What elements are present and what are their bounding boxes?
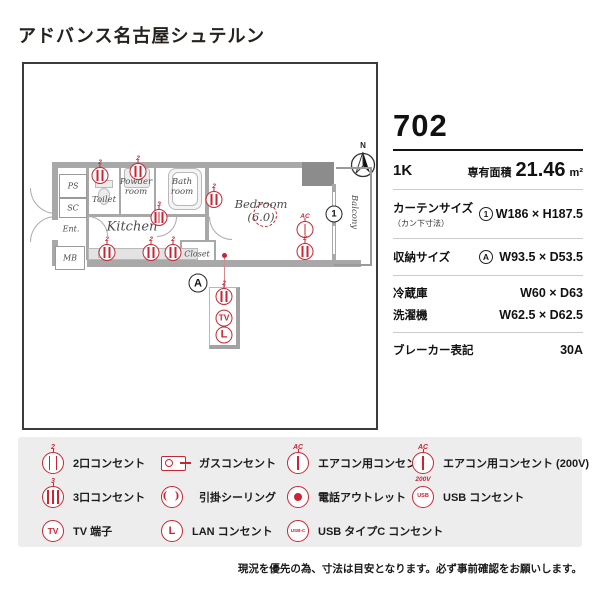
usb-outlet-icon: USB xyxy=(412,486,434,508)
wall-segment xyxy=(86,214,208,217)
divider xyxy=(393,189,583,190)
legend-item: ( ) 引掛シーリング xyxy=(161,486,276,508)
compass-needle xyxy=(349,150,377,178)
outlet-2-icon: 2 xyxy=(143,244,160,266)
legend-item: AC200V エアコン用コンセント (200V) xyxy=(412,452,589,474)
storage-size-value: W93.5 × D53.5 xyxy=(499,250,583,264)
lan-jack-icon: L xyxy=(216,325,233,344)
unit-info-panel: 702 1K 専有面積 21.46 m² カーテンサイズ （カン下寸法） 1 W… xyxy=(393,110,583,358)
room-label-toilet: Toilet xyxy=(92,196,116,206)
room-label-closet: Closet xyxy=(184,249,210,258)
room-label-balcony: Balcony xyxy=(348,195,358,229)
legend-item: USB-C USB タイプC コンセント xyxy=(287,520,443,542)
unit-layout: 1K xyxy=(393,162,412,179)
washer-label: 洗濯機 xyxy=(393,307,428,323)
gas-outlet-icon xyxy=(161,456,186,471)
phone-outlet-icon xyxy=(287,486,309,508)
outlet-2-icon: 2 xyxy=(42,452,64,474)
curtain-size-label: カーテンサイズ xyxy=(393,203,473,215)
pillar xyxy=(302,162,334,186)
curtain-marker-1: 1 xyxy=(479,207,493,221)
door-arc xyxy=(30,216,56,242)
area-value: 21.46 xyxy=(515,159,565,182)
curtain-size-sublabel: （カン下寸法） xyxy=(393,218,479,229)
unit-number: 702 xyxy=(393,110,583,141)
storage-marker-a: A xyxy=(189,274,208,293)
fridge-value: W60 × D63 xyxy=(520,286,583,300)
door-arc xyxy=(30,188,56,214)
balcony-edge xyxy=(370,167,372,266)
breaker-label: ブレーカー表記 xyxy=(393,342,474,358)
storage-size-label: 収納サイズ xyxy=(393,249,479,265)
legend-item: ガスコンセント xyxy=(161,455,276,471)
room-label-bath: Bathroom xyxy=(165,178,199,198)
outlet-2-icon: 2 xyxy=(297,243,314,265)
outlet-3-icon: 3 xyxy=(42,486,64,508)
compass-north-label: N xyxy=(347,142,379,150)
legend-item: 3 3口コンセント xyxy=(42,486,145,508)
divider xyxy=(393,275,583,276)
washer-value: W62.5 × D62.5 xyxy=(499,308,583,322)
area-label: 専有面積 xyxy=(467,164,511,180)
outlet-2-icon: 2 xyxy=(206,191,223,213)
floorplan-canvas: N xyxy=(22,62,378,430)
lan-jack-icon: L xyxy=(161,520,183,542)
ceiling-light-icon xyxy=(253,203,277,227)
floorplan-page: アドバンス名古屋シュテルン N xyxy=(0,0,600,600)
outlet-2-icon: 2 xyxy=(92,167,109,189)
legend-panel: 2 2口コンセント ガスコンセント AC エアコン用コンセント AC200V エ… xyxy=(18,437,582,547)
divider xyxy=(393,149,583,151)
room-label-sc: SC xyxy=(67,203,79,212)
legend-item: 電話アウトレット xyxy=(287,486,406,508)
closet-wall xyxy=(180,240,216,242)
room-label-ent: Ent. xyxy=(63,224,80,233)
building-title: アドバンス名古屋シュテルン xyxy=(18,22,265,48)
room-label-mb: MB xyxy=(63,253,77,262)
divider xyxy=(393,238,583,239)
ac-outlet-icon: AC xyxy=(287,452,309,474)
legend-item: L LAN コンセント xyxy=(161,520,273,542)
tv-jack-icon: TV xyxy=(42,520,64,542)
breaker-value: 30A xyxy=(560,343,583,357)
legend-item: USB USB コンセント xyxy=(412,486,524,508)
window xyxy=(333,226,335,254)
legend-item: 2 2口コンセント xyxy=(42,452,145,474)
room-label-ps: PS xyxy=(68,181,79,190)
balcony-edge xyxy=(334,264,372,266)
door-arc xyxy=(88,216,108,236)
ac-200v-outlet-icon: AC200V xyxy=(412,452,434,474)
outlet-2-icon: 2 xyxy=(130,163,147,185)
legend-item: AC エアコン用コンセント xyxy=(287,452,428,474)
area-unit: m² xyxy=(570,167,583,179)
ceiling-light-icon: ( ) xyxy=(161,486,183,508)
storage-marker-a: A xyxy=(479,250,493,264)
balcony-edge xyxy=(336,167,372,169)
outlet-3-icon: 3 xyxy=(151,209,168,231)
usb-c-outlet-icon: USB-C xyxy=(287,520,309,542)
legend-item: TV TV 端子 xyxy=(42,520,112,542)
closet-wall xyxy=(214,240,216,260)
disclaimer-note: 現況を優先の為、寸法は目安となります。必ず事前確認をお願いします。 xyxy=(0,561,582,576)
curtain-marker-1: 1 xyxy=(326,206,343,223)
outlet-2-icon: 2 xyxy=(165,244,182,266)
curtain-size-value: W186 × H187.5 xyxy=(496,207,583,221)
divider xyxy=(393,332,583,333)
fridge-label: 冷蔵庫 xyxy=(393,285,428,301)
compass-icon: N xyxy=(347,142,379,183)
outlet-2-icon: 2 xyxy=(99,244,116,266)
